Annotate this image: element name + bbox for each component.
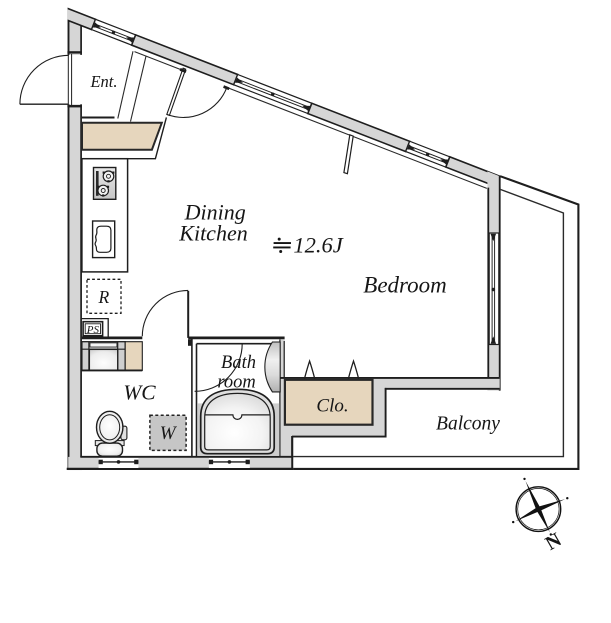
svg-text:12.6J: 12.6J	[293, 232, 343, 257]
svg-text:Bath: Bath	[221, 353, 256, 373]
svg-text:W: W	[160, 423, 178, 444]
svg-text:room: room	[217, 372, 255, 392]
svg-text:R: R	[98, 287, 110, 307]
svg-text:Balcony: Balcony	[436, 414, 500, 435]
svg-text:Clo.: Clo.	[316, 396, 348, 417]
svg-text:Ent.: Ent.	[89, 72, 117, 91]
svg-text:Bedroom: Bedroom	[363, 273, 446, 298]
svg-text:PS: PS	[86, 324, 100, 336]
svg-text:WC: WC	[123, 381, 156, 405]
svg-text:Kitchen: Kitchen	[178, 220, 247, 245]
